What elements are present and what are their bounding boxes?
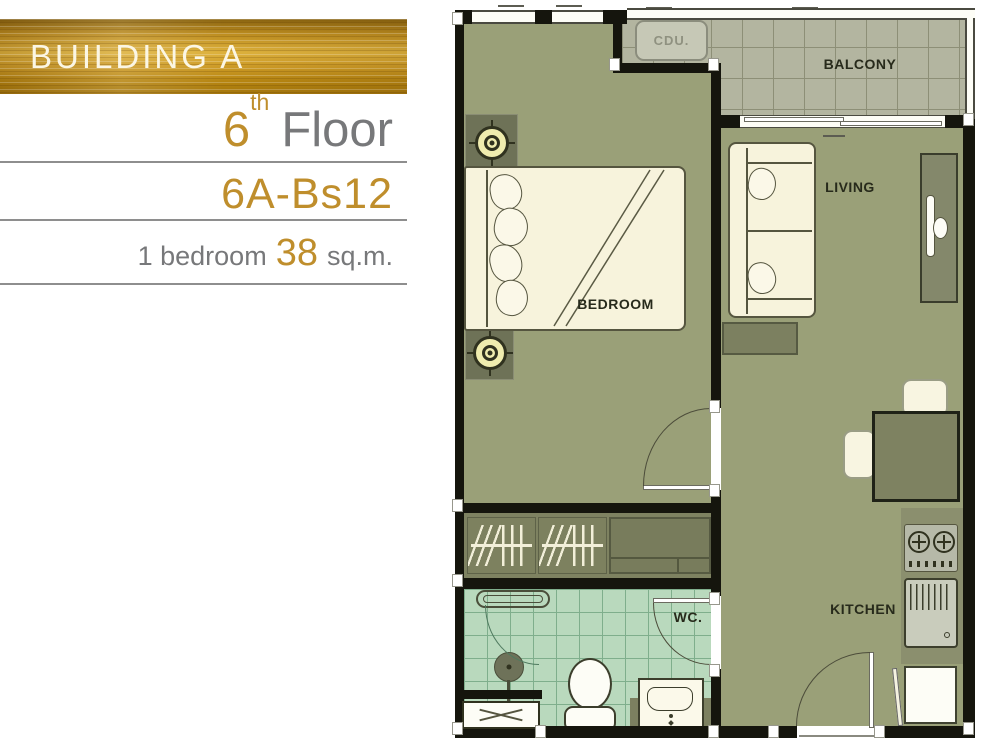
wardrobe-cabinet	[609, 517, 711, 574]
wall-bedroom-wardrobe	[455, 503, 721, 513]
bedroom-window	[472, 10, 535, 24]
wall-joint	[709, 592, 720, 605]
wall-joint	[963, 722, 974, 735]
floor-word: Floor	[281, 103, 393, 157]
nightstand-lamp	[465, 114, 518, 172]
living-label: LIVING	[808, 179, 892, 195]
wall-joint	[452, 12, 463, 25]
stove-burner-icon	[908, 531, 930, 553]
sofa-pillow	[745, 260, 778, 296]
sofa	[728, 142, 816, 318]
wall-joint	[708, 58, 719, 71]
page: BUILDING A 6thFloor 6A-Bs12 1 bedroom 38…	[0, 0, 982, 750]
building-banner: BUILDING A	[0, 19, 407, 94]
coffee-table	[722, 322, 798, 355]
headboard-line	[486, 170, 488, 327]
wall-joint	[768, 725, 779, 738]
floor-plan: CDU. BEDROOM	[450, 4, 982, 748]
stove-burner-icon	[933, 531, 955, 553]
stove	[904, 524, 958, 572]
wall-joint	[609, 58, 620, 71]
wall-left	[455, 14, 464, 730]
wardrobe-hanger-section	[538, 517, 607, 574]
dimension-tick	[498, 5, 524, 7]
wc-label: WC.	[663, 609, 713, 625]
sliding-panel	[744, 117, 844, 122]
drainboard	[910, 584, 952, 610]
nightstand-lamp	[465, 326, 514, 380]
tv-console	[920, 153, 958, 303]
tv-stand	[933, 217, 948, 239]
wall-joint	[709, 400, 720, 413]
pillow	[487, 171, 525, 212]
bathroom-sink	[638, 678, 704, 728]
wall-joint	[709, 484, 720, 497]
cdu-label: CDU.	[654, 33, 690, 48]
sliding-panel	[840, 121, 942, 126]
wall-joint	[535, 725, 546, 738]
wall-right	[963, 119, 975, 738]
area-unit: sq.m.	[327, 241, 393, 272]
kitchen-sink	[904, 578, 958, 648]
wall-wardrobe-wc	[455, 578, 721, 589]
wall-joint	[963, 113, 974, 126]
balcony-railing-right	[965, 18, 975, 119]
wall-joint	[452, 574, 463, 587]
wall-joint	[452, 499, 463, 512]
dimension-tick	[823, 135, 845, 137]
bedroom-count: 1 bedroom	[138, 241, 267, 272]
divider-line	[0, 219, 407, 221]
bath-mat	[462, 701, 540, 729]
balcony-label: BALCONY	[795, 56, 925, 72]
info-panel: BUILDING A 6thFloor 6A-Bs12 1 bedroom 38…	[0, 0, 410, 330]
bedroom-label: BEDROOM	[568, 296, 663, 312]
wall-window-seg	[535, 10, 552, 24]
wall-cdu-bottom	[613, 63, 721, 73]
wall-joint	[874, 725, 885, 738]
sofa-pillow	[745, 165, 779, 202]
floor-title: 6thFloor	[0, 102, 393, 158]
divider-line	[0, 283, 407, 285]
wall-joint	[452, 722, 463, 735]
bedroom-window	[552, 10, 603, 24]
unit-code: 6A-Bs12	[0, 170, 393, 219]
area-value: 38	[276, 232, 318, 275]
cdu-unit: CDU.	[635, 20, 708, 61]
wall-bottom-right	[875, 726, 975, 738]
dining-table	[872, 411, 960, 502]
toilet-bowl	[568, 658, 612, 710]
building-label: BUILDING A	[0, 19, 407, 94]
entrance-threshold	[799, 735, 875, 737]
kitchen-label: KITCHEN	[818, 601, 908, 617]
wall-joint	[709, 664, 720, 677]
wall-balcony-stub-left	[711, 115, 740, 128]
wall-joint	[708, 725, 719, 738]
dimension-tick	[556, 5, 582, 7]
wall-mat-top	[462, 690, 542, 699]
stove-knobs	[909, 561, 953, 567]
floor-ordinal: th	[250, 89, 269, 115]
pillow	[486, 241, 526, 286]
divider-line	[0, 161, 407, 163]
drain	[944, 632, 950, 638]
wall-window-seg	[603, 10, 627, 24]
wall-balcony-stub-right	[945, 115, 965, 128]
balcony-railing-top	[627, 8, 975, 20]
floor-number: 6	[223, 103, 250, 157]
refrigerator	[904, 666, 957, 724]
wardrobe-hanger-section	[467, 517, 536, 574]
unit-summary: 1 bedroom 38 sq.m.	[0, 232, 393, 275]
